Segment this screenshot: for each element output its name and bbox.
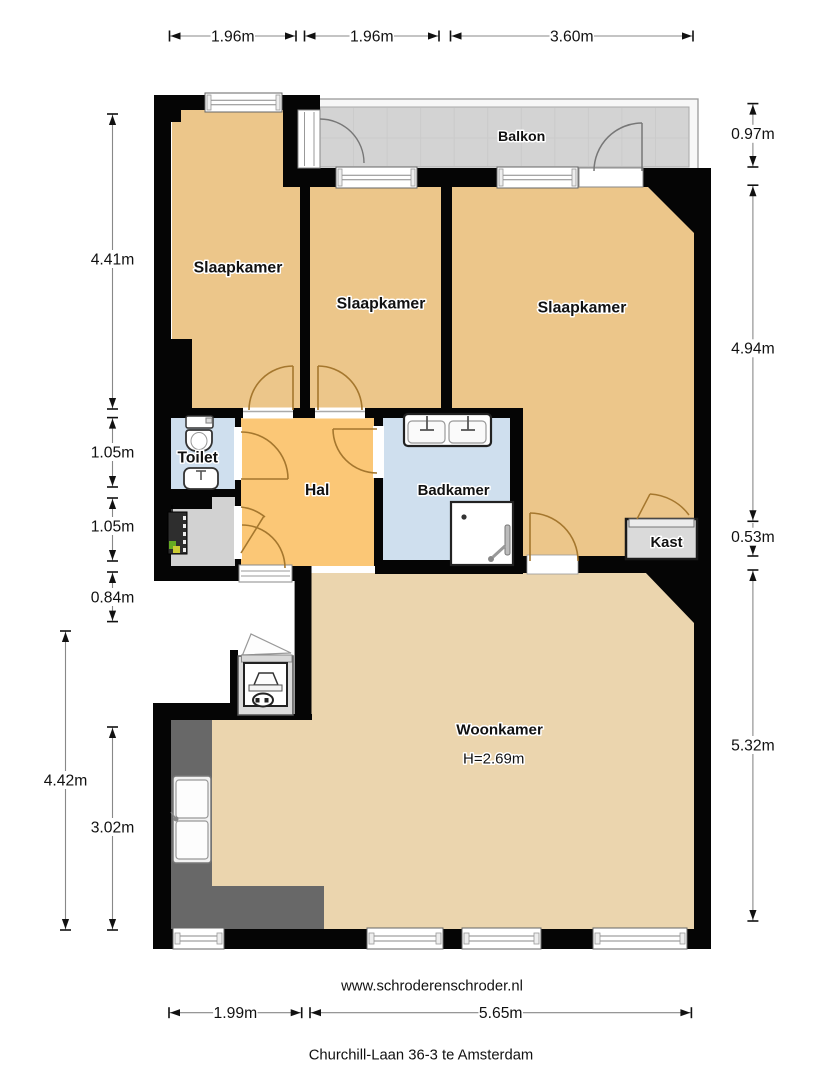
svg-text:4.94m: 4.94m	[731, 341, 775, 358]
svg-text:0.84m: 0.84m	[91, 589, 135, 606]
svg-text:3.60m: 3.60m	[550, 28, 594, 45]
svg-text:Slaapkamer: Slaapkamer	[194, 260, 283, 277]
svg-text:5.32m: 5.32m	[731, 737, 775, 754]
svg-text:4.42m: 4.42m	[44, 772, 88, 789]
svg-text:www.schroderenschroder.nl: www.schroderenschroder.nl	[340, 979, 523, 995]
svg-text:Kast: Kast	[650, 535, 682, 551]
svg-text:4.41m: 4.41m	[91, 251, 135, 268]
svg-text:Churchill-Laan 36-3 te Amsterd: Churchill-Laan 36-3 te Amsterdam	[309, 1048, 534, 1064]
svg-text:1.96m: 1.96m	[211, 28, 255, 45]
svg-text:H=2.69m: H=2.69m	[463, 751, 524, 768]
svg-text:1.05m: 1.05m	[91, 518, 135, 535]
svg-text:0.97m: 0.97m	[731, 126, 775, 143]
svg-text:Slaapkamer: Slaapkamer	[337, 296, 426, 313]
svg-text:Badkamer: Badkamer	[418, 483, 490, 499]
svg-text:0.53m: 0.53m	[731, 529, 775, 546]
svg-text:Toilet: Toilet	[177, 450, 217, 467]
svg-text:5.65m: 5.65m	[479, 1005, 523, 1022]
svg-text:Hal: Hal	[305, 482, 329, 499]
svg-text:1.96m: 1.96m	[350, 28, 394, 45]
svg-text:3.02m: 3.02m	[91, 819, 135, 836]
svg-text:1.05m: 1.05m	[91, 444, 135, 461]
svg-text:Woonkamer: Woonkamer	[456, 722, 543, 739]
svg-text:Balkon: Balkon	[498, 129, 545, 145]
svg-text:Slaapkamer: Slaapkamer	[538, 300, 627, 317]
svg-text:1.99m: 1.99m	[214, 1005, 258, 1022]
